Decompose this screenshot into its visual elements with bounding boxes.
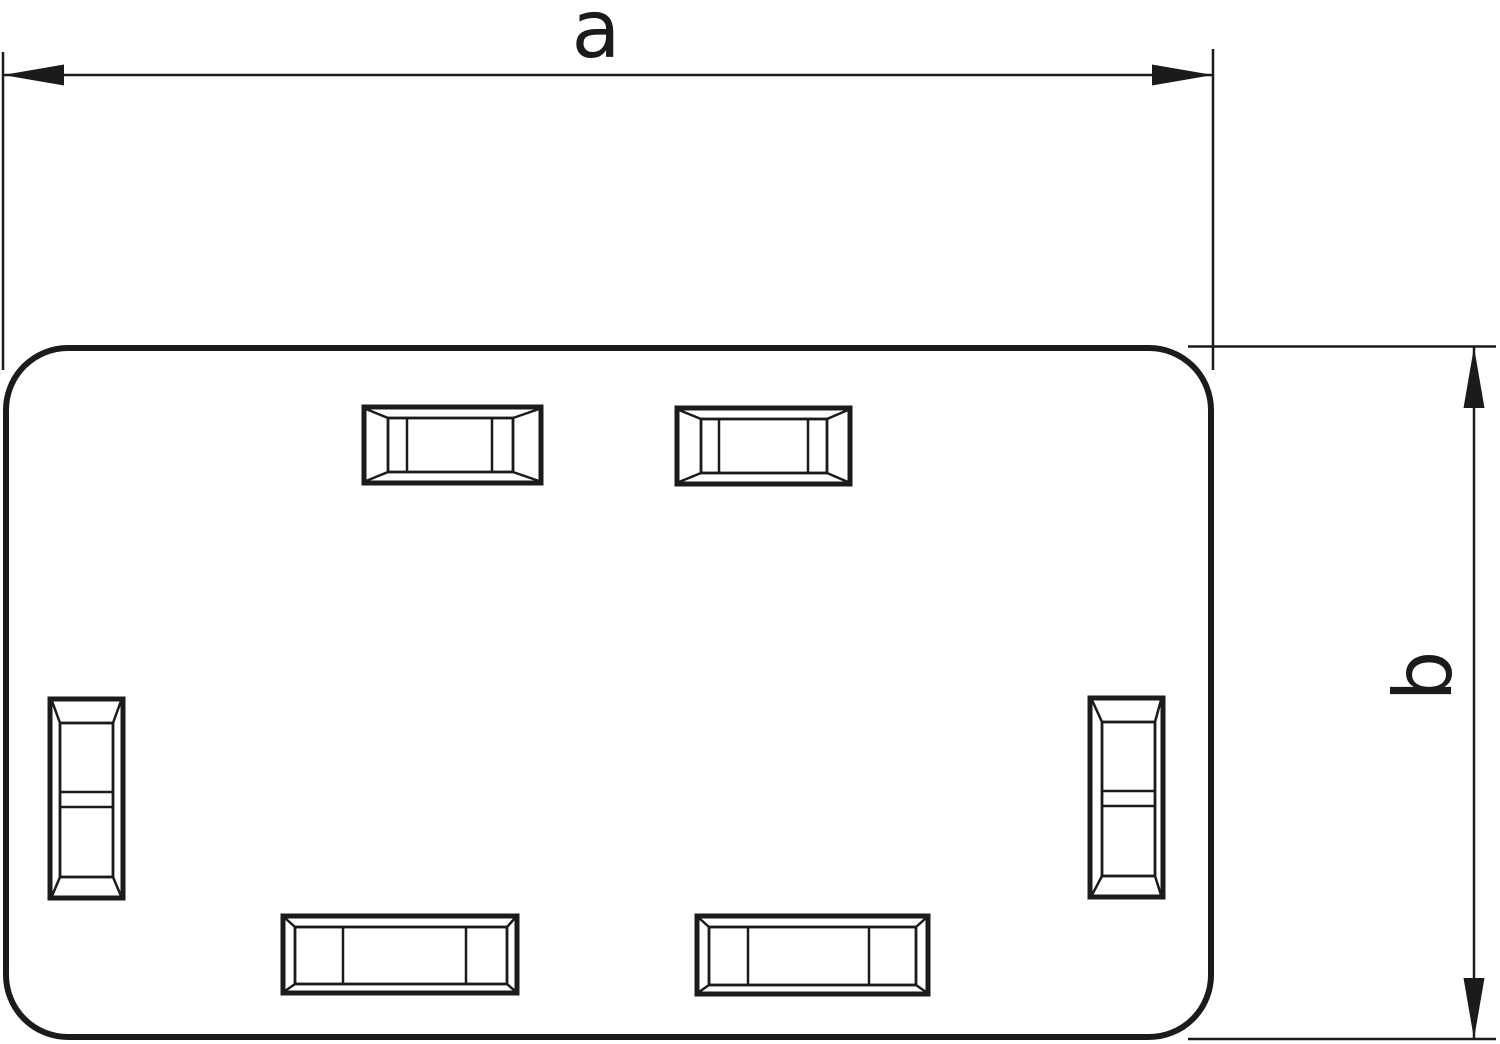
dimension-a-arrow-right	[1152, 65, 1213, 86]
slot-right	[1090, 698, 1163, 897]
slot-bottom-right-bevel-tl	[699, 918, 709, 927]
dimension-b-label: b	[1377, 651, 1470, 702]
slot-top-right-bevel-br	[827, 473, 848, 482]
dimension-a	[3, 49, 1213, 370]
slot-bottom-left-inner	[295, 927, 507, 984]
slot-bottom-right-bevel-tr	[916, 918, 926, 927]
slot-right-inner	[1102, 722, 1155, 876]
part-body-outline	[6, 348, 1211, 1037]
slot-top-left-bevel-bl	[366, 472, 388, 481]
end-piece-dimension-drawing: a b	[0, 0, 1500, 1044]
slot-left-bevel-tl	[52, 701, 60, 723]
slot-right-bevel-br	[1155, 876, 1161, 895]
slot-bottom-right-bevel-bl	[699, 985, 709, 992]
slot-right-bevel-tr	[1155, 700, 1161, 722]
slot-top-right-bevel-bl	[679, 473, 701, 482]
slot-top-left-bevel-tr	[513, 409, 539, 418]
slot-bottom-right-inner	[709, 927, 916, 985]
dimension-b-arrow-bottom	[1464, 978, 1485, 1039]
slot-bottom-right	[697, 916, 928, 994]
dimension-b-arrow-top	[1464, 347, 1485, 408]
slot-bottom-right-bevel-br	[916, 985, 926, 992]
slot-top-left	[364, 407, 541, 483]
slot-left-bevel-tr	[113, 701, 121, 723]
dimension-a-arrow-left	[3, 65, 64, 86]
slot-left-inner	[60, 723, 113, 877]
slot-top-left-bevel-br	[513, 472, 539, 481]
drawing-root: a b	[3, 0, 1496, 1039]
slot-bottom-left-bevel-tl	[285, 918, 295, 927]
slot-top-right	[677, 408, 850, 484]
slot-top-right-bevel-tl	[679, 410, 701, 419]
slot-left-bevel-br	[113, 877, 121, 896]
slot-left	[50, 699, 123, 898]
slot-right-bevel-bl	[1092, 876, 1102, 895]
dimension-a-label: a	[571, 0, 620, 76]
slot-top-left-bevel-tl	[366, 409, 388, 418]
slot-right-bevel-tl	[1092, 700, 1102, 722]
slot-bottom-left	[283, 916, 517, 993]
slot-bottom-left-bevel-bl	[285, 984, 295, 991]
slot-top-right-bevel-tr	[827, 410, 848, 419]
dimension-arrows-and-labels: a b	[3, 0, 1485, 1039]
technical-drawing-canvas: a b	[0, 0, 1500, 1044]
slot-left-bevel-bl	[52, 877, 60, 896]
